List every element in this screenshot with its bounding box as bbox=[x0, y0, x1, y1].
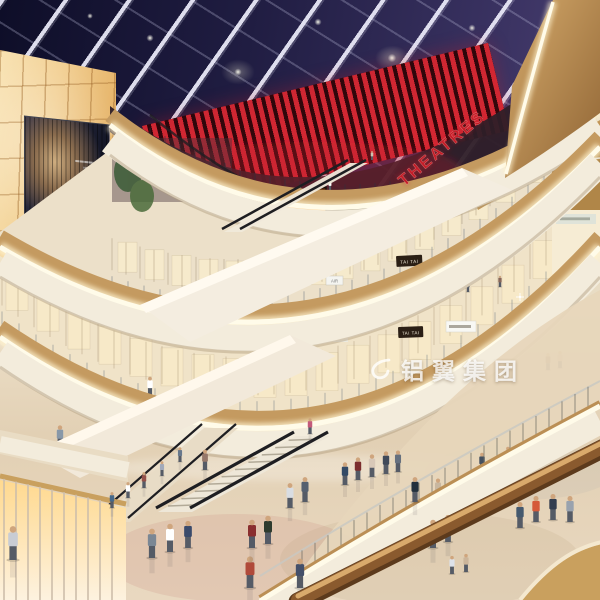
watermark-logo-swirl bbox=[366, 355, 394, 383]
sign-label: TAI TAI bbox=[402, 330, 420, 336]
mall-atrium-scene: TAI TAI AIR TAI TAI bbox=[0, 0, 600, 600]
atrium-structure: TAI TAI AIR TAI TAI bbox=[0, 0, 600, 600]
watermark-text: 铝翼集团 bbox=[401, 352, 525, 386]
store-sign-white bbox=[446, 321, 476, 332]
sign-label: TAI TAI bbox=[400, 259, 419, 265]
left-walkway-glow-balustrade bbox=[0, 430, 128, 600]
store-sign-tai-tai-lower: TAI TAI bbox=[398, 326, 423, 338]
store-sign-air: AIR bbox=[326, 276, 343, 285]
watermark: 铝翼集团 bbox=[366, 352, 525, 386]
sign-label: AIR bbox=[331, 279, 338, 284]
